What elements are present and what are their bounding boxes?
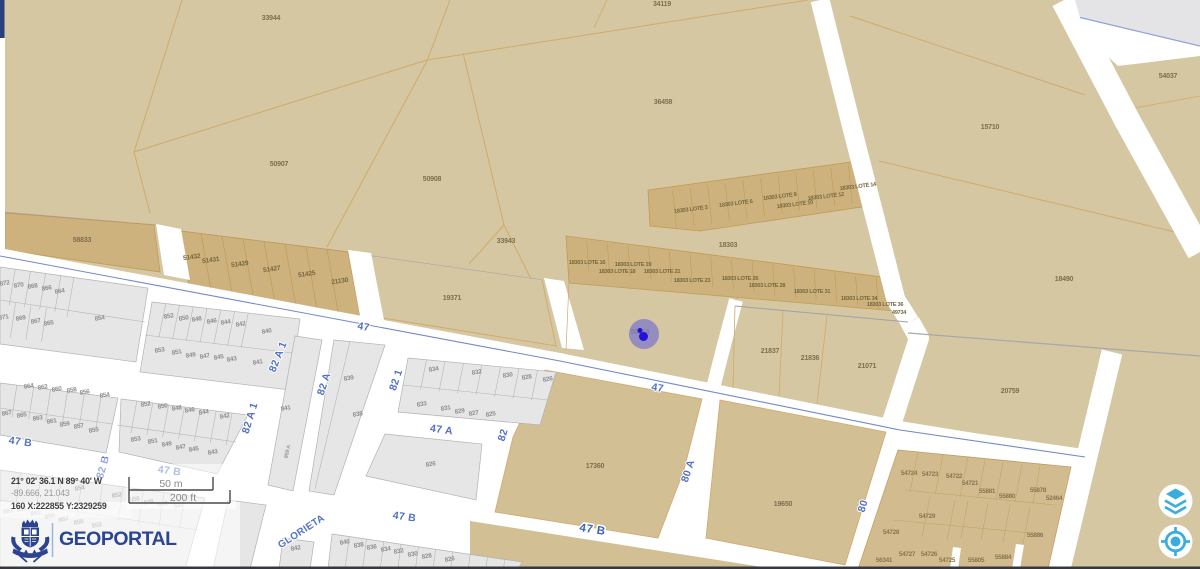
svg-text:50907: 50907 [270,161,289,168]
svg-text:18303 LOTE 16: 18303 LOTE 16 [569,260,606,266]
svg-text:18490: 18490 [1055,276,1074,283]
svg-text:50908: 50908 [423,176,442,183]
svg-text:18303: 18303 [719,242,738,249]
svg-text:54726: 54726 [921,551,938,558]
svg-text:56341: 56341 [876,557,893,564]
svg-text:54721: 54721 [962,480,979,487]
svg-text:18303 LOTE 23: 18303 LOTE 23 [674,278,711,284]
svg-text:18303 LOTE 18: 18303 LOTE 18 [599,269,636,275]
svg-text:200 ft: 200 ft [170,492,196,504]
svg-text:GEOPORTAL: GEOPORTAL [59,528,177,550]
svg-text:20759: 20759 [1001,388,1020,395]
svg-text:21837: 21837 [761,348,780,355]
svg-text:21071: 21071 [858,363,877,370]
svg-text:54037: 54037 [1159,73,1178,80]
svg-text:47: 47 [650,381,664,395]
svg-text:54727: 54727 [899,551,916,558]
svg-text:33944: 33944 [262,15,281,22]
svg-text:55884: 55884 [995,554,1012,561]
svg-text:18303 LOTE 28: 18303 LOTE 28 [749,283,786,289]
svg-text:21° 02' 36.1 N 89° 40' W: 21° 02' 36.1 N 89° 40' W [11,476,103,486]
svg-text:50 m: 50 m [159,478,183,490]
svg-text:55880: 55880 [999,493,1016,500]
svg-text:18303 LOTE 31: 18303 LOTE 31 [794,289,831,295]
svg-text:-89.666, 21.043: -89.666, 21.043 [11,488,70,498]
svg-text:54729: 54729 [919,513,936,520]
svg-text:33943: 33943 [497,238,516,245]
svg-text:160 X:222855 Y:2329259: 160 X:222855 Y:2329259 [11,501,107,511]
svg-text:58833: 58833 [73,237,92,244]
svg-text:54728: 54728 [883,529,900,536]
svg-text:18303 LOTE 21: 18303 LOTE 21 [644,269,681,275]
svg-text:15710: 15710 [981,124,1000,131]
svg-text:55878: 55878 [1030,487,1047,494]
svg-text:54725: 54725 [939,557,956,564]
svg-text:18303 LOTE 26: 18303 LOTE 26 [722,276,759,282]
svg-text:18303 LOTE 19: 18303 LOTE 19 [615,262,652,268]
svg-text:34119: 34119 [653,1,671,8]
svg-text:21836: 21836 [801,355,820,362]
svg-text:36458: 36458 [654,99,673,106]
svg-text:54723: 54723 [922,471,939,478]
svg-text:19650: 19650 [774,501,793,508]
svg-text:19371: 19371 [443,295,462,302]
svg-text:55805: 55805 [968,557,985,564]
svg-text:49734: 49734 [892,310,907,316]
svg-text:55886: 55886 [1027,532,1044,539]
svg-text:17360: 17360 [586,463,605,470]
svg-text:18303 LOTE 36: 18303 LOTE 36 [867,302,904,308]
svg-text:47: 47 [356,320,370,334]
svg-text:54724: 54724 [901,470,918,477]
svg-text:54722: 54722 [946,473,963,480]
svg-text:52464: 52464 [1046,495,1063,502]
svg-text:55881: 55881 [979,488,996,495]
